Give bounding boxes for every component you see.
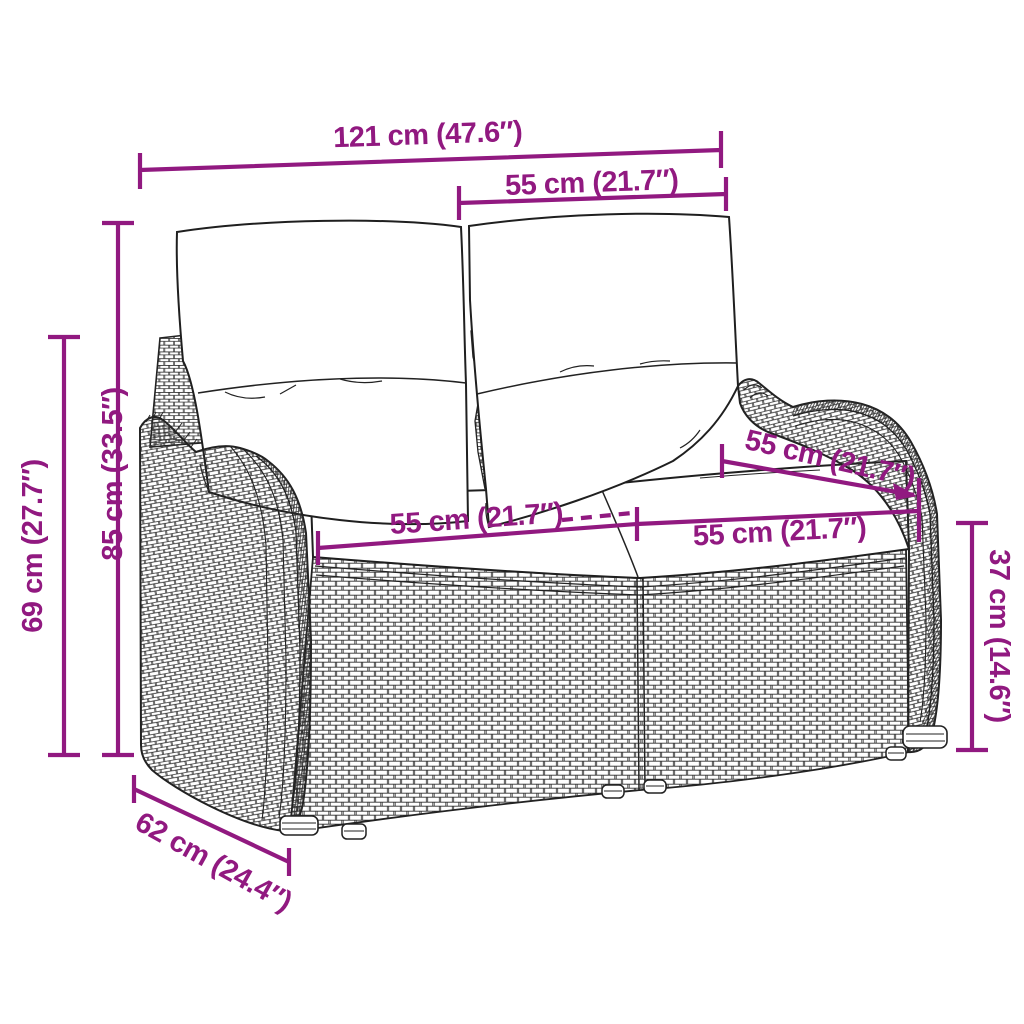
dimension-total-height: 85 cm (33.5″) (97, 223, 134, 755)
dimension-backrest-width: 55 cm (21.7″) (459, 164, 726, 220)
dimension-label-armrest-height: 69 cm (27.7″) (17, 459, 49, 632)
foot-peg (644, 780, 666, 793)
armrest-right-foot (903, 726, 947, 748)
dimension-label-seat-height: 37 cm (14.6″) (983, 549, 1015, 722)
foot-peg (602, 785, 624, 798)
base-box (290, 549, 909, 832)
foot-peg (886, 747, 906, 760)
dimension-diagram: 121 cm (47.6″) 55 cm (21.7″) 85 cm (33.5… (0, 0, 1024, 1024)
armrest-left-foot (280, 816, 318, 835)
dimension-label-total-width: 121 cm (47.6″) (333, 116, 523, 155)
dimension-seat-height: 37 cm (14.6″) (956, 523, 1015, 750)
dimension-armrest-height: 69 cm (27.7″) (17, 337, 80, 755)
bench-dimension-illustration: 121 cm (47.6″) 55 cm (21.7″) 85 cm (33.5… (0, 0, 1024, 1024)
dimension-label-backrest-width: 55 cm (21.7″) (504, 164, 678, 202)
foot-peg (342, 824, 366, 839)
dimension-label-total-height: 85 cm (33.5″) (97, 387, 129, 560)
